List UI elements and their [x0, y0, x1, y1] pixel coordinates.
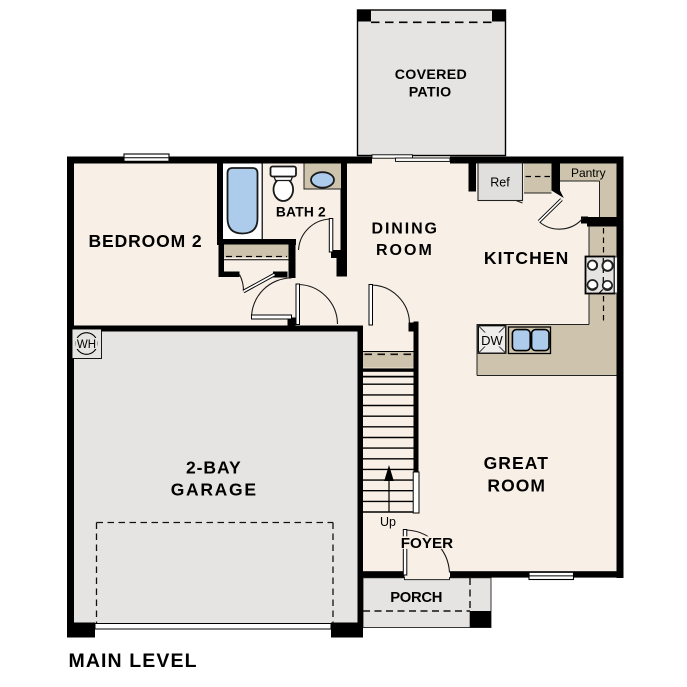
svg-text:BEDROOM 2: BEDROOM 2	[88, 231, 202, 251]
svg-text:PORCH: PORCH	[390, 590, 442, 606]
svg-text:2-BAY: 2-BAY	[186, 458, 242, 478]
svg-text:WH: WH	[77, 339, 96, 351]
svg-text:FOYER: FOYER	[401, 535, 453, 552]
svg-text:Pantry: Pantry	[571, 166, 606, 180]
svg-text:Up: Up	[380, 515, 396, 529]
svg-text:GREAT: GREAT	[484, 453, 549, 473]
svg-text:PATIO: PATIO	[409, 85, 452, 101]
svg-text:MAIN LEVEL: MAIN LEVEL	[69, 650, 198, 672]
svg-text:BATH 2: BATH 2	[276, 205, 326, 220]
svg-text:KITCHEN: KITCHEN	[484, 248, 569, 268]
svg-text:ROOM: ROOM	[487, 476, 546, 496]
svg-text:ROOM: ROOM	[376, 242, 434, 259]
svg-text:DINING: DINING	[371, 221, 438, 238]
svg-text:COVERED: COVERED	[395, 67, 467, 83]
svg-text:GARAGE: GARAGE	[171, 480, 258, 500]
svg-text:DW: DW	[481, 333, 503, 348]
svg-text:Ref: Ref	[490, 176, 510, 190]
